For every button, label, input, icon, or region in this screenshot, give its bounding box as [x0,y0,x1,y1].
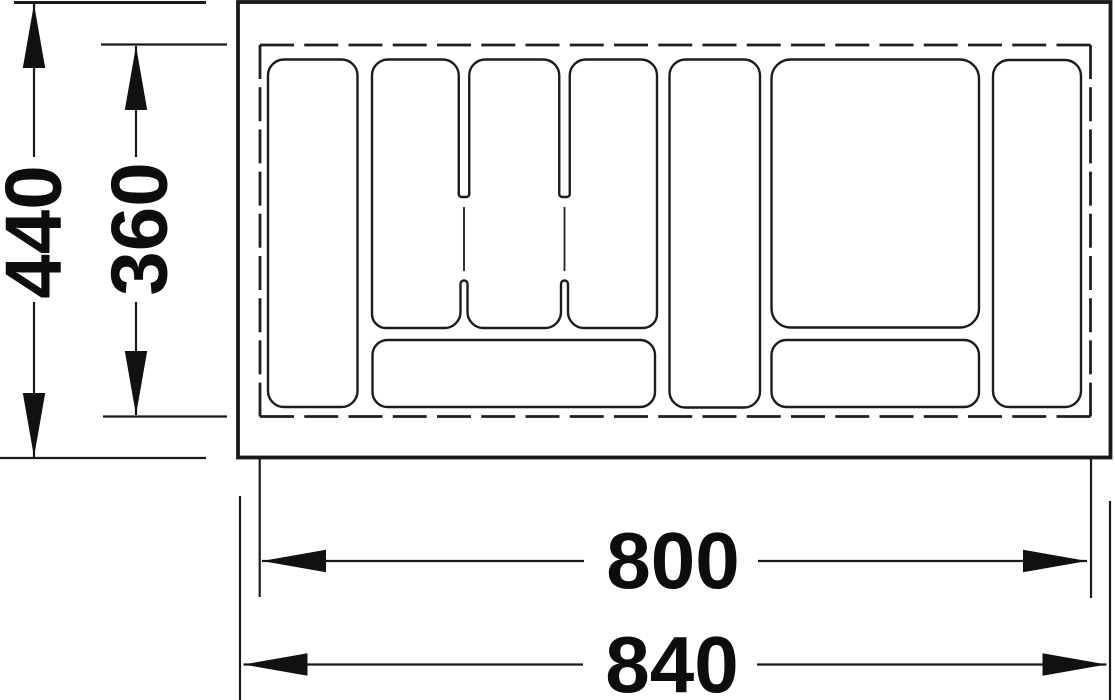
svg-text:440: 440 [0,165,78,298]
svg-text:840: 840 [605,620,738,700]
svg-text:800: 800 [606,516,739,605]
svg-text:360: 360 [95,162,184,295]
